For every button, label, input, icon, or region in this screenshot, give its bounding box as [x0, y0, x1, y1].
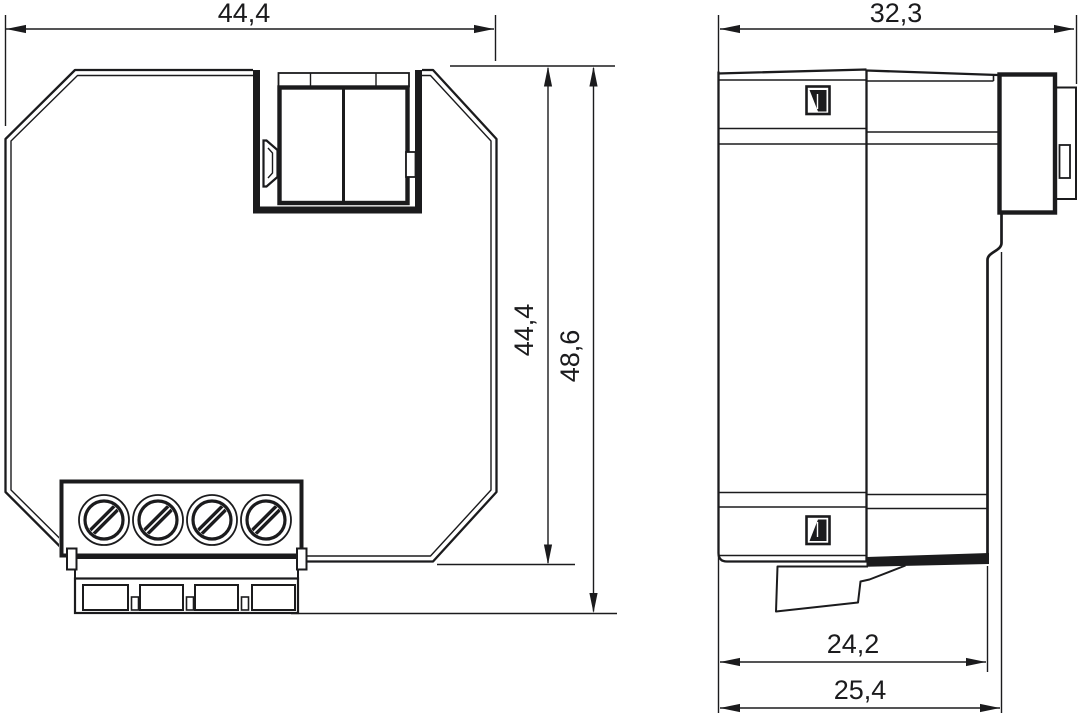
bus-connector-side-block: [1000, 75, 1056, 213]
wire-window-3: [195, 585, 238, 610]
side-view: 32,3 24,2 25,4: [718, 0, 1077, 713]
dim-label-front-width: 44,4: [218, 0, 271, 28]
wire-window-1: [83, 585, 128, 610]
terminal-lower-band: [75, 558, 298, 579]
dim-label-side-total-depth: 25,4: [834, 675, 887, 705]
snap-foot: [776, 566, 906, 612]
terminal-tab-right: [297, 549, 307, 570]
technical-drawing-page: 44,4 44,4 48,6: [0, 0, 1080, 719]
connector-latch-left: [264, 141, 278, 187]
terminal-screw-4: [241, 495, 291, 545]
side-body-right-edge: [988, 213, 1002, 554]
wire-window-2: [140, 585, 183, 610]
dim-label-front-total-height: 48,6: [555, 330, 585, 383]
dim-label-front-height: 44,4: [509, 304, 539, 357]
bus-connector-recess: [253, 60, 422, 212]
connector-notch-right: [406, 152, 416, 177]
programming-flag-icon-bottom: [807, 517, 830, 545]
side-base-strip: [867, 553, 990, 567]
dimension-drawing-canvas: 44,4 44,4 48,6: [0, 0, 1080, 719]
connector-rim: [279, 73, 410, 87]
wire-window-4: [252, 585, 295, 610]
side-body-left-edge: [719, 72, 867, 562]
terminal-tab-left: [67, 549, 77, 570]
dimension-side-foot-depth: 24,2: [720, 566, 988, 672]
programming-flag-icon-top: [807, 87, 830, 115]
side-body-top-edge: [718, 70, 998, 76]
terminal-screw-1: [79, 495, 129, 545]
dim-label-side-foot-depth: 24,2: [827, 629, 880, 659]
terminal-screw-2: [133, 495, 183, 545]
front-view: 44,4 44,4 48,6: [6, 0, 618, 614]
bus-connector-terminal: [1055, 88, 1076, 200]
terminal-block: [59, 479, 307, 614]
terminal-screw-3: [187, 495, 237, 545]
dim-label-side-depth: 32,3: [870, 0, 923, 28]
dimension-front-height: 44,4: [437, 66, 615, 565]
